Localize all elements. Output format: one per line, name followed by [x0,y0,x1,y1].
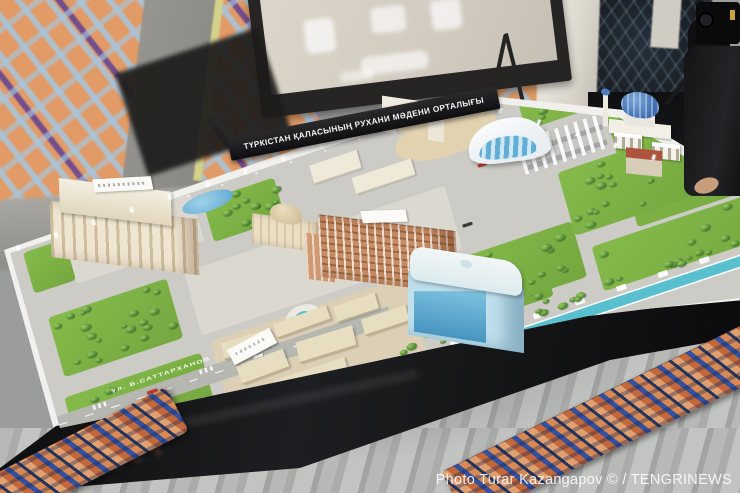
model-tree [167,321,178,330]
projected-petroglyph [429,0,462,31]
model-tree [593,209,600,215]
model-tree [119,344,129,352]
model-tree [139,334,149,342]
model-tree [242,197,250,204]
model-tree [66,312,76,320]
photo-credit-watermark: Photo Turar Kazangapov © / TENGRINEWS [436,472,732,488]
park-lawn [48,278,183,377]
model-tree [222,208,233,217]
aquapark-building [408,245,524,359]
model-tree [80,322,92,332]
model-tree [528,279,536,285]
model-tree [596,173,604,180]
model-tree [609,181,617,188]
model-tree [687,238,697,246]
model-tree [584,176,596,185]
model-tree [152,289,161,296]
model-tree [95,357,103,363]
model-tree [232,203,241,210]
camera-label [730,10,735,20]
model-tree [638,200,646,207]
model-tree [729,239,739,247]
model-tree [53,322,62,330]
model-tree [542,298,549,304]
model-tree [598,250,608,258]
projected-petroglyph [370,4,407,34]
model-tree [537,271,546,278]
model-tree [554,233,566,243]
model-tree [73,359,81,365]
model-tree [664,260,674,268]
car [462,222,472,228]
projected-horses [339,69,374,83]
model-tree [595,180,607,190]
theater-building [49,171,200,276]
model-tree [148,307,160,316]
model-tree [270,185,282,195]
projected-petroglyph [303,17,337,54]
model-tree [694,249,704,257]
model-tree [686,255,692,260]
model-tree [128,309,139,318]
model-tree [406,342,418,352]
minaret [603,92,608,127]
model-tree [86,350,97,359]
camera-lens-icon [698,12,714,28]
court-building [352,158,416,194]
model-tree [585,220,597,230]
model-tree [596,161,605,168]
model-tree [142,287,150,294]
exhibition-photo: ул. Б.САТТАРХАНОВ [0,0,740,493]
model-tree [95,337,102,343]
camera-operator [668,0,740,225]
model-tree [572,215,582,223]
video-camera [696,2,740,44]
projection-surface [257,0,557,95]
minaret-top [601,88,610,96]
model-tree [601,200,610,207]
rooftop-sign [360,209,407,223]
model-tree [605,173,613,180]
model-tree [79,310,86,316]
model-tree [646,177,654,184]
model-tree [705,249,712,255]
